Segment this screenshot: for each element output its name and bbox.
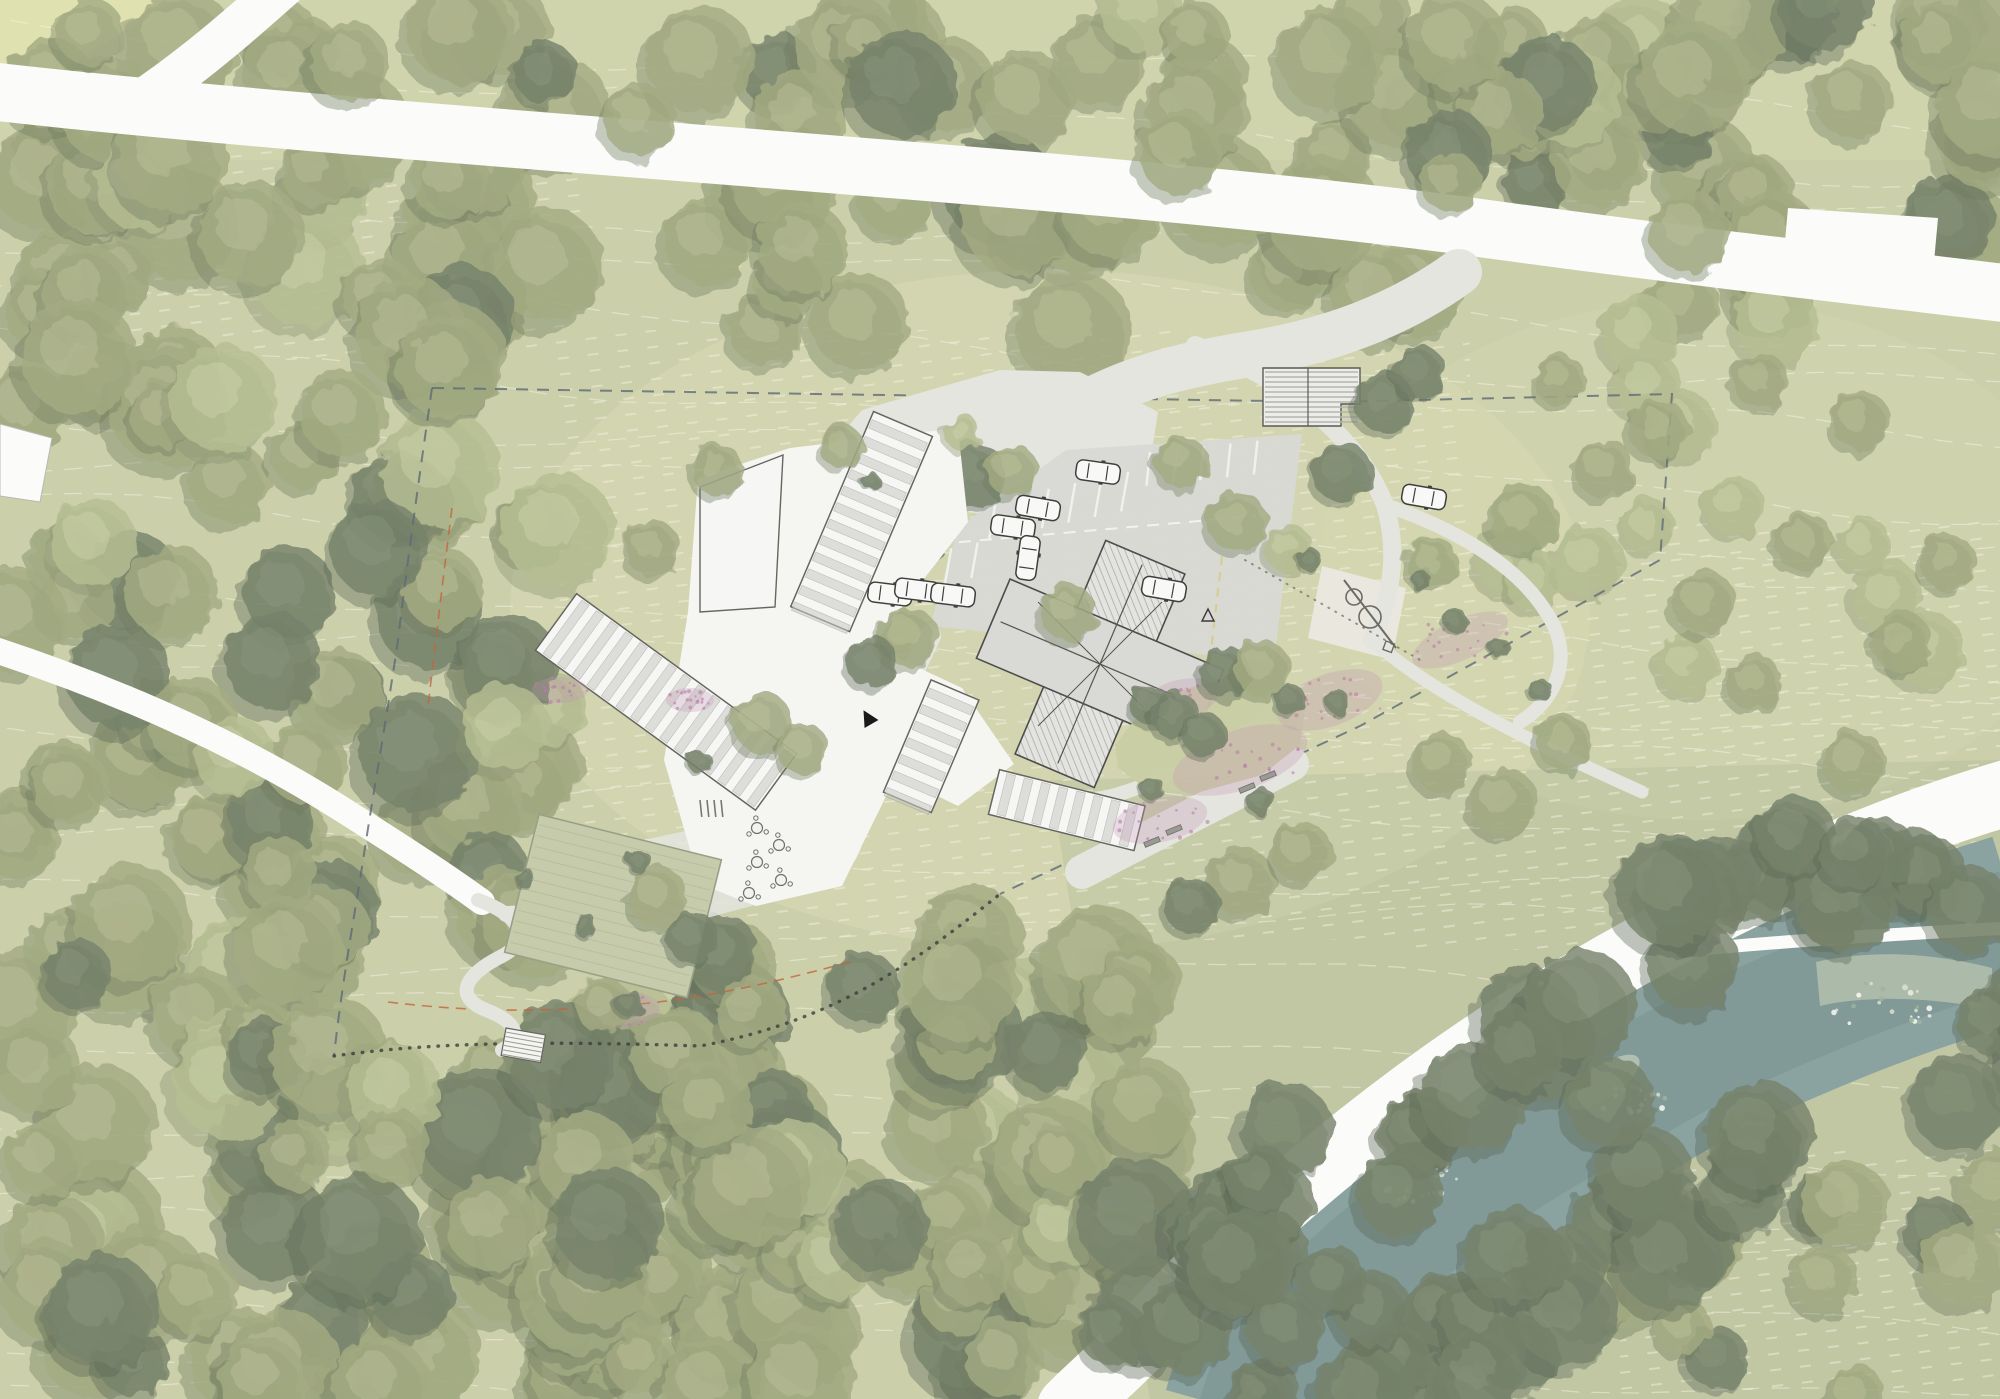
tree-highlight xyxy=(854,644,880,670)
tree-highlight xyxy=(1840,400,1870,430)
flower-dot xyxy=(1428,633,1431,636)
tree-highlight xyxy=(323,35,363,75)
tree-highlight xyxy=(439,1087,500,1148)
tree-highlight xyxy=(1640,410,1670,440)
flower-dot xyxy=(1349,692,1352,695)
flower-dot xyxy=(568,690,570,692)
flower-dot xyxy=(1466,630,1469,633)
flower-dot xyxy=(686,698,689,701)
tree-highlight xyxy=(864,474,873,483)
tree-highlight xyxy=(1159,699,1183,723)
flower-dot xyxy=(1320,710,1323,713)
tree-highlight xyxy=(258,561,304,607)
stair-deck-slab xyxy=(501,1028,545,1063)
tree-highlight xyxy=(1261,1302,1299,1340)
tree-highlight xyxy=(367,1121,405,1159)
tree-highlight xyxy=(851,1194,898,1241)
tree-highlight xyxy=(140,560,187,607)
tree-highlight xyxy=(553,1128,601,1176)
flower-dot xyxy=(1477,640,1480,643)
tree-highlight xyxy=(1816,1174,1859,1217)
gravel-dot xyxy=(1926,1005,1932,1011)
site-plan-svg xyxy=(0,0,2000,1399)
tree-highlight xyxy=(1501,495,1535,529)
tree-highlight xyxy=(1310,1256,1344,1290)
gravel-dot xyxy=(1916,1005,1919,1008)
tree-highlight xyxy=(400,427,459,486)
tree-highlight xyxy=(680,1075,723,1118)
flower-dot xyxy=(534,685,536,687)
tree-highlight xyxy=(239,628,288,677)
gravel-dot xyxy=(1917,1016,1919,1018)
flower-dot xyxy=(572,684,575,687)
flower-dot xyxy=(1229,743,1232,746)
tree-highlight xyxy=(272,1131,307,1166)
gravel-dot xyxy=(1909,1017,1914,1022)
tree-highlight xyxy=(1493,641,1503,651)
flower-dot xyxy=(1354,692,1358,696)
gravel-dot xyxy=(1848,1021,1852,1025)
tree-highlight xyxy=(632,854,644,866)
flower-dot xyxy=(627,1023,630,1026)
tree-highlight xyxy=(1542,362,1568,388)
tree-highlight xyxy=(1864,572,1899,607)
tree-highlight xyxy=(1925,1069,1973,1117)
tree-highlight xyxy=(362,1058,409,1105)
gravel-dot xyxy=(1914,1009,1918,1013)
gravel-dot xyxy=(1902,984,1908,990)
tree-highlight xyxy=(678,211,723,256)
flower-dot xyxy=(1117,828,1121,832)
flower-dot xyxy=(1416,650,1419,653)
tree-highlight xyxy=(508,226,565,283)
tree-highlight xyxy=(233,1352,277,1396)
flower-dot xyxy=(1427,623,1431,627)
flower-dot xyxy=(1137,820,1140,823)
flower-dot xyxy=(688,706,692,710)
flower-dot xyxy=(1349,678,1352,681)
gravel-dot xyxy=(1879,996,1884,1001)
tree-highlight xyxy=(726,987,762,1023)
flower-dot xyxy=(698,690,702,694)
tree-highlight xyxy=(638,877,668,907)
cafe-table xyxy=(776,875,787,886)
tree-highlight xyxy=(1614,308,1652,346)
car-mirror-left xyxy=(920,578,924,581)
tree-highlight xyxy=(616,96,652,132)
tree-highlight xyxy=(1365,382,1395,412)
entry-pavilion xyxy=(1263,368,1360,426)
flower-dot xyxy=(1296,747,1300,751)
flower-dot xyxy=(1191,811,1194,814)
flower-dot xyxy=(544,688,548,692)
tree-highlight xyxy=(924,1191,962,1229)
tree-highlight xyxy=(742,702,772,732)
car-mirror-left xyxy=(956,583,960,586)
tree-highlight xyxy=(182,809,223,850)
tree-highlight xyxy=(1480,1223,1528,1271)
car-body xyxy=(930,582,976,607)
flower-dot xyxy=(1473,654,1476,657)
tree-highlight xyxy=(827,432,849,454)
flower-dot xyxy=(694,695,696,697)
tree-highlight xyxy=(1144,780,1156,792)
tree-highlight xyxy=(1633,1222,1685,1274)
flower-dot xyxy=(1317,678,1320,681)
flower-dot xyxy=(1427,640,1429,642)
tree-highlight xyxy=(1090,1309,1124,1343)
flower-meadow-patch xyxy=(532,677,588,703)
tree-highlight xyxy=(1682,580,1714,612)
tree-highlight xyxy=(1151,123,1193,165)
tree-highlight xyxy=(240,1190,294,1244)
tree-highlight xyxy=(1115,1074,1162,1121)
flower-dot xyxy=(1439,655,1442,658)
flower-dot xyxy=(1132,811,1134,813)
tree-highlight xyxy=(170,1266,210,1306)
tree-highlight xyxy=(1175,12,1207,44)
flower-dot xyxy=(1180,688,1183,691)
tree-highlight xyxy=(319,1193,380,1254)
flower-dot xyxy=(642,1008,646,1012)
flower-dot xyxy=(553,685,556,688)
tree-highlight xyxy=(524,51,555,82)
gravel-dot xyxy=(1831,1010,1837,1016)
gravel-dot xyxy=(1908,990,1913,995)
tree-highlight xyxy=(1250,790,1264,804)
tree-highlight xyxy=(1624,361,1658,395)
flower-dot xyxy=(1291,771,1294,774)
gravel-dot xyxy=(1864,982,1868,986)
gravel-dot xyxy=(1455,1177,1458,1180)
tree-highlight xyxy=(1296,22,1349,75)
flower-dot xyxy=(1189,830,1193,834)
gravel-dot xyxy=(1663,1096,1668,1101)
gravel-dot xyxy=(1856,993,1861,998)
tree-highlight xyxy=(1035,290,1093,348)
tree-highlight xyxy=(1430,162,1460,192)
tree-highlight xyxy=(1202,1226,1257,1281)
tree-highlight xyxy=(346,515,394,563)
tree-highlight xyxy=(1422,742,1452,772)
tree-highlight xyxy=(573,1186,628,1241)
tree-highlight xyxy=(1545,723,1573,751)
flower-dot xyxy=(570,694,572,696)
gravel-dot xyxy=(1877,1001,1881,1005)
tree-highlight xyxy=(888,617,918,647)
flower-dot xyxy=(1306,702,1309,705)
flower-dot xyxy=(689,698,692,701)
flower-dot xyxy=(1258,757,1262,761)
flower-dot xyxy=(1308,682,1312,686)
tree-highlight xyxy=(187,362,241,416)
flower-dot xyxy=(1437,641,1440,644)
tree-highlight xyxy=(1935,1234,1978,1277)
tree-highlight xyxy=(460,1192,507,1239)
tree-highlight xyxy=(664,22,718,76)
tree-highlight xyxy=(978,1330,1018,1370)
tree-highlight xyxy=(518,871,528,881)
gravel-dot xyxy=(1870,982,1873,985)
tree-highlight xyxy=(1630,508,1657,535)
flower-dot xyxy=(1205,820,1209,824)
tree-highlight xyxy=(255,849,291,885)
flower-dot xyxy=(676,691,679,694)
tree-highlight xyxy=(17,1134,55,1172)
tree-highlight xyxy=(1414,544,1440,570)
tree-highlight xyxy=(827,289,876,338)
gravel-dot xyxy=(1917,1019,1922,1024)
tree-highlight xyxy=(476,698,520,742)
tree-highlight xyxy=(1831,828,1866,863)
tree-highlight xyxy=(577,917,589,929)
flower-dot xyxy=(1175,809,1178,812)
cafe-table xyxy=(774,840,785,851)
tree-highlight xyxy=(950,420,968,438)
gravel-dot xyxy=(1656,1093,1660,1097)
flower-dot xyxy=(1432,644,1436,648)
gravel-dot xyxy=(1444,1168,1448,1172)
flower-dot xyxy=(1186,688,1188,690)
flower-dot xyxy=(702,707,705,710)
tree-highlight xyxy=(674,919,700,945)
tree-highlight xyxy=(258,41,306,89)
tree-highlight xyxy=(1371,1164,1414,1207)
flower-dot xyxy=(1123,809,1127,813)
tree-highlight xyxy=(92,883,151,942)
tree-highlight xyxy=(1219,859,1253,893)
tree-highlight xyxy=(313,384,356,427)
flower-dot xyxy=(1320,717,1323,720)
tree-highlight xyxy=(1667,642,1698,673)
tree-highlight xyxy=(413,332,465,384)
tree-highlight xyxy=(1635,853,1691,909)
flower-dot xyxy=(578,681,580,683)
flower-dot xyxy=(638,1024,640,1026)
tree-highlight xyxy=(1190,720,1212,742)
tree-highlight xyxy=(585,987,613,1015)
tree-highlight xyxy=(45,761,83,799)
tree-highlight xyxy=(1801,1256,1835,1290)
tree-highlight xyxy=(1656,40,1711,95)
flower-dot xyxy=(1504,631,1508,635)
stair-deck xyxy=(501,1028,545,1063)
tree-highlight xyxy=(1748,292,1790,334)
tree-highlight xyxy=(700,452,726,478)
tree-highlight xyxy=(1423,8,1472,57)
car-mirror-right xyxy=(953,605,957,608)
tree-highlight xyxy=(1832,740,1864,772)
flower-dot xyxy=(640,1021,643,1024)
tree-highlight xyxy=(1784,522,1814,552)
flower-dot xyxy=(1236,750,1240,754)
gravel-dot xyxy=(1659,1105,1665,1111)
flower-dot xyxy=(1243,764,1247,768)
gravel-dot xyxy=(1439,1172,1445,1178)
tree-highlight xyxy=(1164,444,1190,470)
tree-highlight xyxy=(1724,1098,1778,1152)
cafe-table xyxy=(744,888,755,899)
flower-dot xyxy=(673,702,676,705)
tree-highlight xyxy=(994,452,1020,478)
flower-dot xyxy=(1456,648,1459,651)
gravel-dot xyxy=(1851,1004,1856,1009)
tree-highlight xyxy=(617,1336,652,1371)
tree-highlight xyxy=(1714,485,1744,515)
tree-highlight xyxy=(1481,779,1515,813)
flower-dot xyxy=(561,686,564,689)
flower-dot xyxy=(1278,747,1281,750)
tree-highlight xyxy=(1532,682,1544,694)
site-plan-canvas xyxy=(0,0,2000,1399)
tree-highlight xyxy=(1049,593,1077,621)
tree-highlight xyxy=(475,630,525,680)
flower-dot xyxy=(542,686,545,689)
tree-highlight xyxy=(64,513,108,557)
flower-dot xyxy=(1482,624,1484,626)
tree-highlight xyxy=(1173,887,1201,915)
cafe-table xyxy=(752,857,763,868)
flower-dot xyxy=(683,690,686,693)
tree-highlight xyxy=(766,1341,819,1394)
gravel-dot xyxy=(1928,1014,1932,1018)
gravel-dot xyxy=(1880,986,1885,991)
tree-highlight xyxy=(773,217,818,262)
tree-highlight xyxy=(1236,1155,1269,1188)
flower-dot xyxy=(1268,769,1271,772)
car-mirror-right xyxy=(917,600,921,603)
tree-highlight xyxy=(1218,502,1248,532)
tree-highlight xyxy=(289,1014,349,1074)
tree-highlight xyxy=(1846,525,1873,552)
tree-highlight xyxy=(1584,448,1614,478)
tree-highlight xyxy=(65,1271,121,1327)
flower-dot xyxy=(1271,743,1275,747)
flower-dot xyxy=(701,697,704,700)
tree-highlight xyxy=(1493,1022,1535,1064)
flower-dot xyxy=(668,693,672,697)
gravel-dot xyxy=(1916,990,1919,993)
tree-highlight xyxy=(1826,73,1865,112)
flower-dot xyxy=(1146,837,1149,840)
tree-highlight xyxy=(1021,1024,1060,1063)
tree-highlight xyxy=(1929,543,1957,571)
tree-highlight xyxy=(1282,832,1312,862)
tree-highlight xyxy=(922,943,980,1001)
tree-highlight xyxy=(7,1038,51,1082)
tree-highlight xyxy=(58,260,103,305)
tree-highlight xyxy=(1882,622,1912,652)
tree-highlight xyxy=(1094,975,1135,1016)
flower-dot xyxy=(550,676,553,679)
tree-highlight xyxy=(1579,1071,1624,1116)
flower-dot xyxy=(680,691,683,694)
tree-highlight xyxy=(618,992,632,1006)
flower-dot xyxy=(549,700,553,704)
tree-highlight xyxy=(947,1240,985,1278)
tree-highlight xyxy=(1663,205,1703,245)
flower-dot xyxy=(1156,827,1159,830)
tree-highlight xyxy=(520,491,576,547)
tree-highlight xyxy=(769,84,814,129)
tree-highlight xyxy=(1272,532,1296,556)
flower-dot xyxy=(569,682,571,684)
flower-dot xyxy=(697,700,700,703)
tree-highlight xyxy=(378,711,437,770)
cafe-table xyxy=(752,823,763,834)
tree-highlight xyxy=(292,147,328,183)
flower-dot xyxy=(707,702,709,704)
tree-highlight xyxy=(1322,452,1352,482)
flower-dot xyxy=(700,701,703,704)
flower-dot xyxy=(557,699,561,703)
tree-highlight xyxy=(1769,808,1808,847)
flower-dot xyxy=(1342,677,1346,681)
tree-highlight xyxy=(1402,354,1428,380)
tree-highlight xyxy=(1039,1136,1074,1171)
tree-highlight xyxy=(784,730,810,756)
tree-highlight xyxy=(1279,689,1295,705)
flower-dot xyxy=(676,707,679,710)
tree-highlight xyxy=(1913,15,1952,54)
tree-highlight xyxy=(1330,694,1342,706)
flower-dot xyxy=(687,689,691,693)
flower-dot xyxy=(1118,820,1122,824)
flower-dot xyxy=(1250,750,1253,753)
flower-dot xyxy=(1215,776,1219,780)
tree-highlight xyxy=(252,912,307,967)
car-mirror-right xyxy=(890,604,894,607)
flower-dot xyxy=(1469,647,1471,649)
flower-dot xyxy=(586,689,589,692)
tree-highlight xyxy=(1096,1177,1155,1236)
flower-dot xyxy=(1431,628,1434,631)
tree-highlight xyxy=(67,9,101,43)
tree-highlight xyxy=(1243,649,1271,677)
tree-highlight xyxy=(1543,967,1599,1023)
tree-highlight xyxy=(1254,1097,1301,1144)
tree-highlight xyxy=(633,529,661,557)
tree-highlight xyxy=(1302,552,1314,564)
flower-dot xyxy=(534,682,537,685)
tree-highlight xyxy=(41,317,99,375)
tree-highlight xyxy=(1565,537,1600,572)
flower-dot xyxy=(1484,655,1487,658)
flower-dot xyxy=(1161,836,1164,839)
tree-highlight xyxy=(54,950,88,984)
tree-highlight xyxy=(1452,1344,1494,1386)
offsite-building-west xyxy=(0,424,52,502)
flower-dot xyxy=(1379,707,1381,709)
tree-highlight xyxy=(712,1145,771,1204)
tree-highlight xyxy=(1941,880,1984,923)
tree-highlight xyxy=(867,48,920,101)
tree-highlight xyxy=(1735,663,1763,691)
tree-highlight xyxy=(692,754,704,766)
tree-highlight xyxy=(347,1352,396,1399)
flower-dot xyxy=(1228,770,1232,774)
tree-highlight xyxy=(1447,612,1459,624)
tree-highlight xyxy=(215,198,267,250)
tree-highlight xyxy=(995,65,1042,112)
flower-dot xyxy=(1194,808,1196,810)
flower-dot xyxy=(1178,836,1182,840)
tree-highlight xyxy=(1415,575,1425,585)
tree-highlight xyxy=(1741,361,1769,389)
flower-dot xyxy=(1356,709,1359,712)
gravel-dot xyxy=(1890,1009,1895,1014)
flower-dot xyxy=(1157,815,1159,817)
